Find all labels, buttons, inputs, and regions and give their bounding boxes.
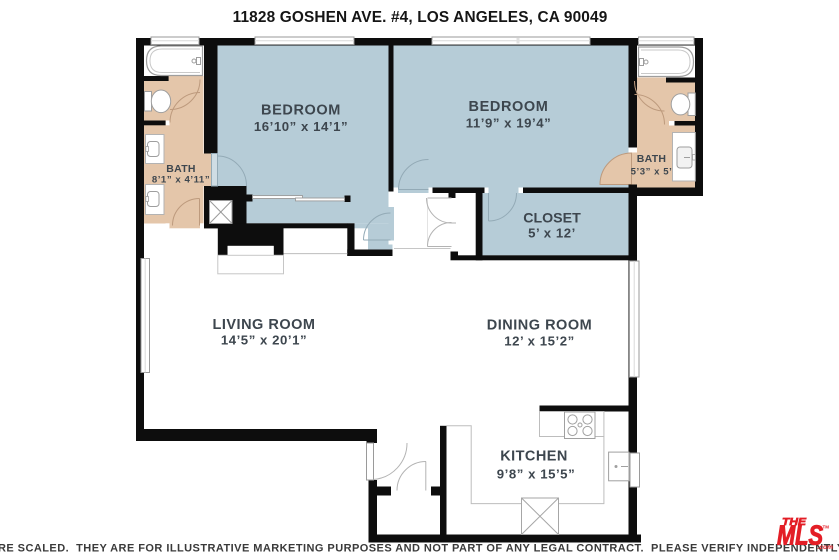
- svg-text:BEDROOM: BEDROOM: [469, 99, 549, 115]
- svg-text:11’9” x 19’4”: 11’9” x 19’4”: [466, 116, 552, 131]
- svg-text:TM: TM: [823, 525, 830, 530]
- svg-text:CLOSET: CLOSET: [523, 211, 581, 227]
- svg-text:5’ x 12’: 5’ x 12’: [528, 226, 576, 241]
- svg-text:14’5” x 20’1”: 14’5” x 20’1”: [221, 333, 307, 348]
- svg-text:5’3” x 5’: 5’3” x 5’: [631, 167, 673, 178]
- svg-text:11828 GOSHEN AVE. #4, LOS ANGE: 11828 GOSHEN AVE. #4, LOS ANGELES, CA 90…: [233, 9, 608, 26]
- svg-text:8’1” x 4’11”: 8’1” x 4’11”: [152, 175, 210, 186]
- svg-text:RE SCALED. THEY ARE FOR ILLUS: RE SCALED. THEY ARE FOR ILLUSTRATIVE MAR…: [0, 543, 839, 555]
- svg-text:LIVING ROOM: LIVING ROOM: [213, 317, 316, 333]
- svg-text:BEDROOM: BEDROOM: [261, 103, 341, 119]
- svg-text:9’8” x 15’5”: 9’8” x 15’5”: [497, 467, 575, 482]
- svg-text:12’ x 15’2”: 12’ x 15’2”: [504, 334, 575, 349]
- svg-text:KITCHEN: KITCHEN: [500, 449, 568, 465]
- svg-text:16’10” x 14’1”: 16’10” x 14’1”: [254, 119, 348, 134]
- svg-text:DINING ROOM: DINING ROOM: [487, 318, 592, 334]
- svg-text:.com: .com: [818, 545, 834, 551]
- svg-text:BATH: BATH: [637, 153, 667, 165]
- svg-text:BATH: BATH: [166, 163, 196, 175]
